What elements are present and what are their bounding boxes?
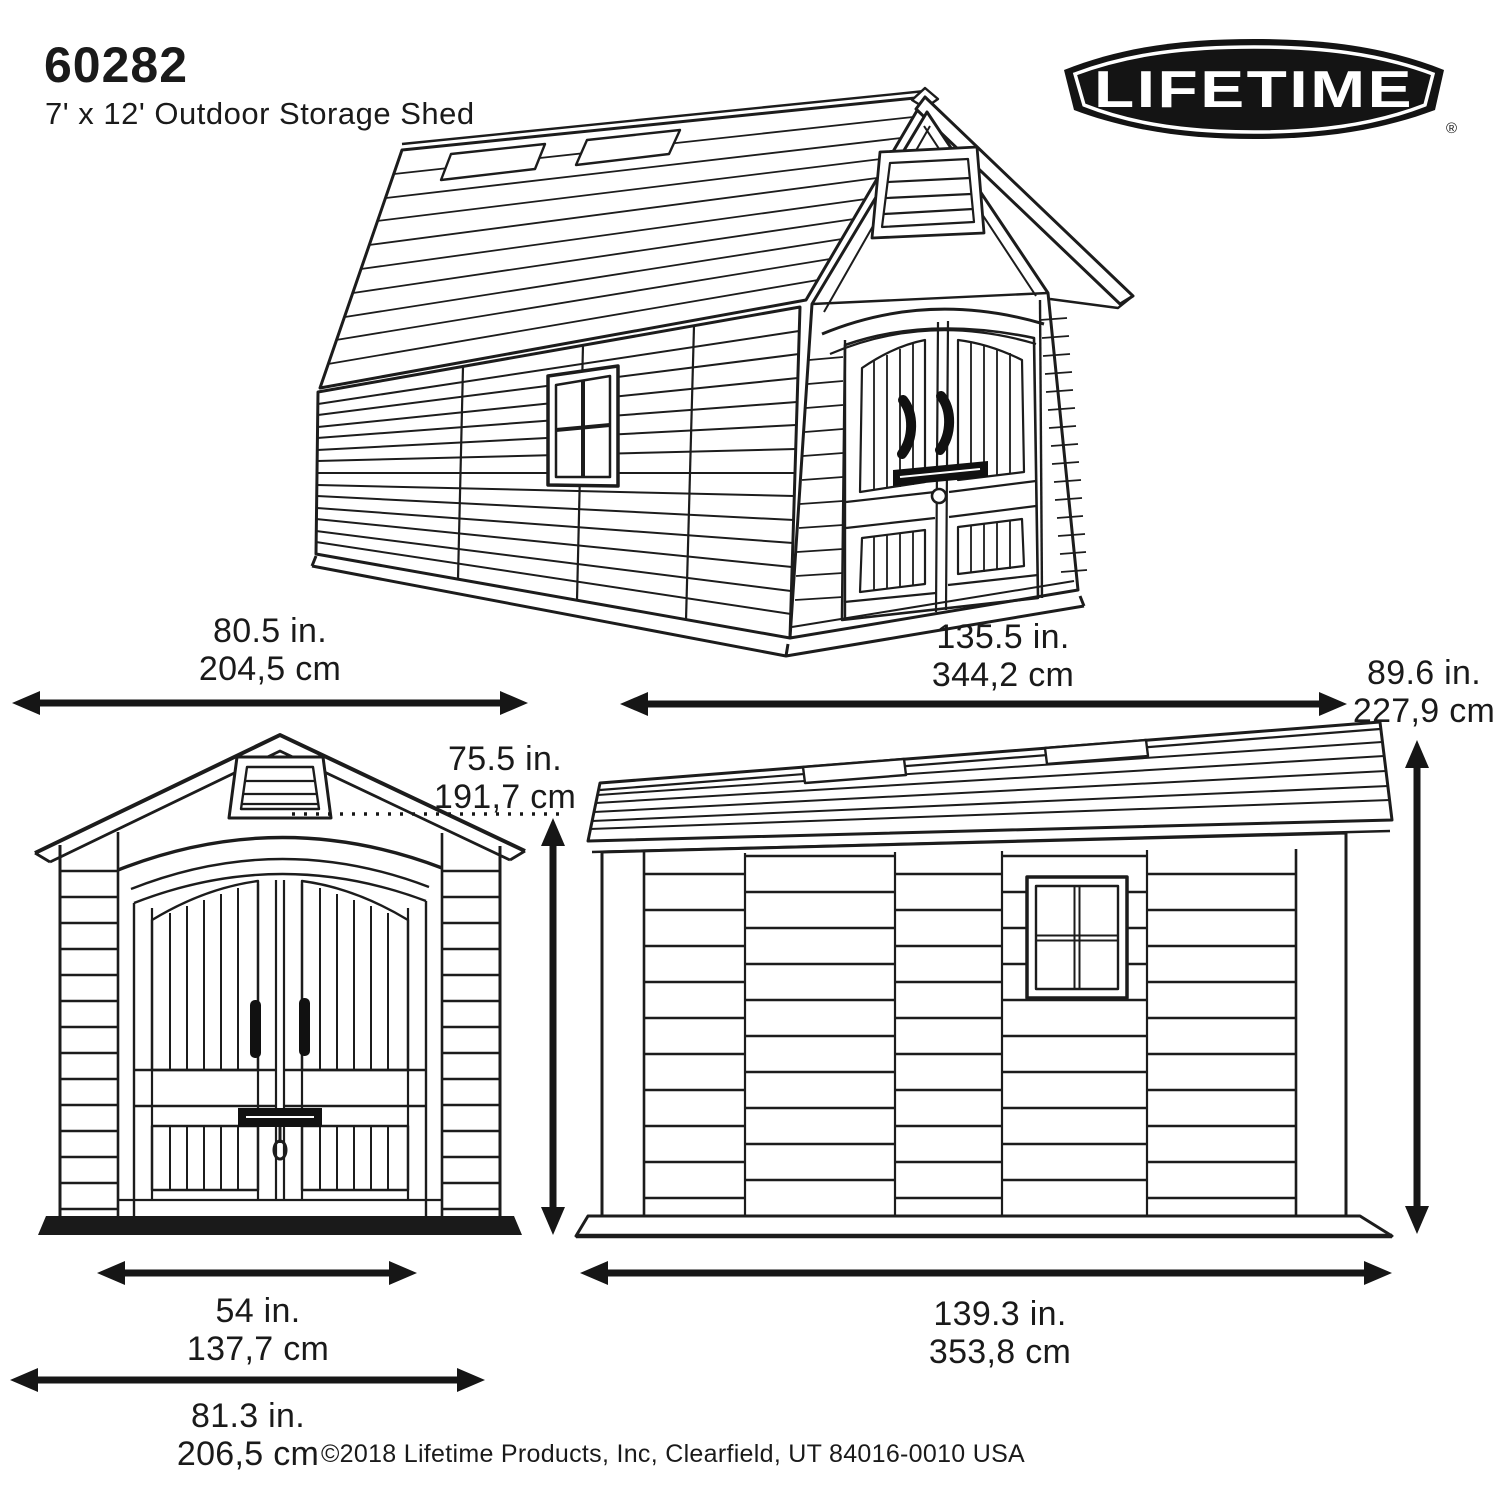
side-view-drawing <box>576 722 1392 1236</box>
dimension-label-width-end: 80.5 in. 204,5 cm <box>199 612 341 688</box>
dimension-value-cm: 191,7 cm <box>434 778 576 816</box>
dimension-arrow-width-end <box>12 691 528 715</box>
dimension-arrow-length-overall <box>620 692 1347 716</box>
registered-trademark-icon: ® <box>1446 120 1457 137</box>
dimension-label-height-door: 75.5 in. 191,7 cm <box>434 740 576 816</box>
perspective-view-drawing <box>312 88 1133 656</box>
dimension-label-width-base: 81.3 in. 206,5 cm <box>177 1397 319 1473</box>
spec-sheet: 60282 7' x 12' Outdoor Storage Shed LIFE… <box>0 0 1500 1500</box>
lifetime-logo-text: LIFETIME <box>1094 61 1414 119</box>
dimension-value-inches: 81.3 in. <box>177 1397 319 1435</box>
dimension-arrow-width-base <box>10 1368 485 1392</box>
lifetime-logo: LIFETIME <box>1058 36 1450 142</box>
dimension-value-inches: 89.6 in. <box>1353 654 1495 692</box>
dimension-arrow-height-overall <box>1405 740 1429 1234</box>
dimension-label-length-base: 139.3 in. 353,8 cm <box>929 1295 1071 1371</box>
dimension-value-inches: 75.5 in. <box>434 740 576 778</box>
dimension-arrow-width-door <box>97 1261 417 1285</box>
page-title-model-number: 60282 <box>44 36 188 94</box>
copyright-text: ©2018 Lifetime Products, Inc, Clearfield… <box>321 1440 1025 1469</box>
dimension-value-cm: 137,7 cm <box>187 1330 329 1368</box>
dimension-value-inches: 135.5 in. <box>932 618 1074 656</box>
dimension-value-inches: 80.5 in. <box>199 612 341 650</box>
dimension-label-width-door: 54 in. 137,7 cm <box>187 1292 329 1368</box>
product-name: 7' x 12' Outdoor Storage Shed <box>45 96 475 132</box>
dimension-value-cm: 206,5 cm <box>177 1435 319 1473</box>
dimension-value-cm: 227,9 cm <box>1353 692 1495 730</box>
dimension-label-length-overall: 135.5 in. 344,2 cm <box>932 618 1074 694</box>
dimension-value-inches: 139.3 in. <box>929 1295 1071 1333</box>
dimension-label-height-overall: 89.6 in. 227,9 cm <box>1353 654 1495 730</box>
dimension-arrow-length-base <box>580 1261 1392 1285</box>
dimension-value-cm: 344,2 cm <box>932 656 1074 694</box>
dimension-value-inches: 54 in. <box>187 1292 329 1330</box>
dimension-value-cm: 353,8 cm <box>929 1333 1071 1371</box>
dimension-value-cm: 204,5 cm <box>199 650 341 688</box>
diagram-canvas <box>0 0 1500 1500</box>
